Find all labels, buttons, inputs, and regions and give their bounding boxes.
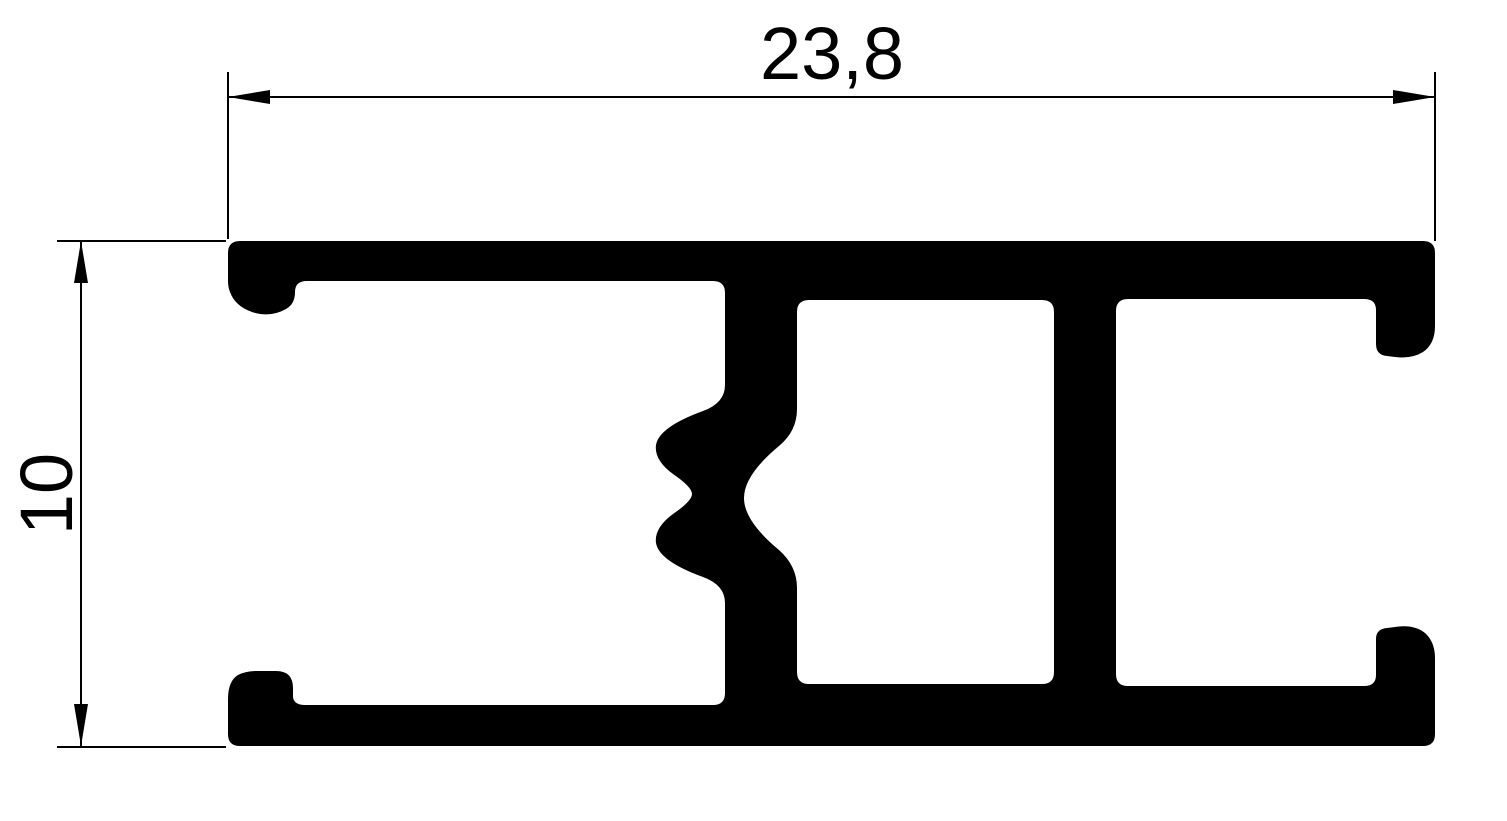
technical-drawing-canvas: 23,8 10	[0, 0, 1507, 821]
height-dimension-label: 10	[5, 453, 88, 535]
extrusion-profile-drawing: 23,8 10	[0, 0, 1507, 821]
width-dimension-label: 23,8	[760, 12, 904, 95]
